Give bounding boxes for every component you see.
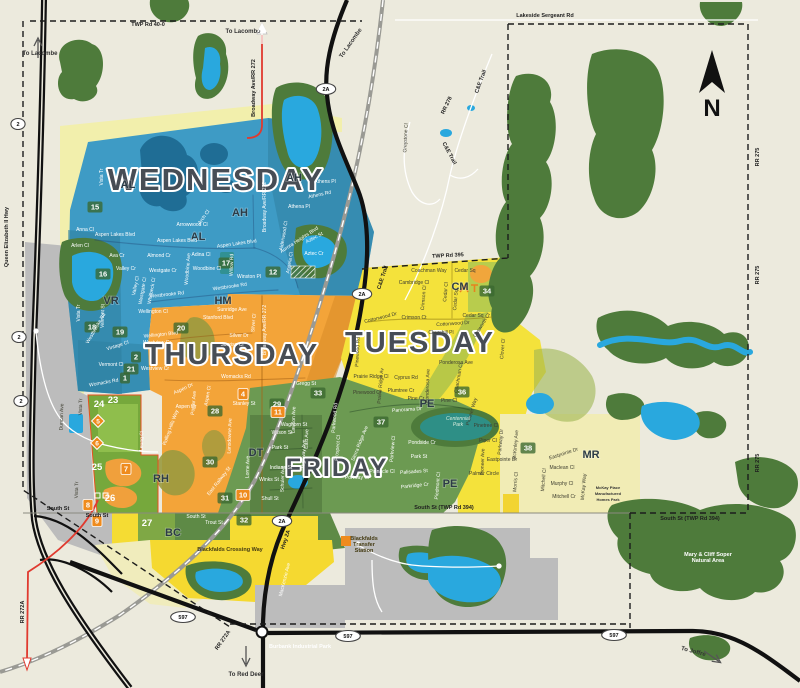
zone-code-bc: BC	[165, 527, 181, 539]
road-label: Ponderosa Ave	[424, 369, 431, 403]
road-label: Piper Cl	[479, 438, 497, 444]
area-number: 21	[127, 365, 135, 374]
area-number: 30	[206, 458, 214, 467]
road-label: Womacks Rd	[221, 374, 251, 380]
hatched-area	[291, 266, 315, 278]
road-label: Aspen Lakes Blvd	[95, 232, 135, 238]
road-label: Vista Tr	[78, 398, 85, 415]
road-label: Cedar Sq	[454, 268, 475, 274]
road-label: South St (TWP Rd 394)	[414, 505, 474, 511]
road-label: RR 272A	[20, 601, 26, 624]
road-label: Broadway Ave/RR 272	[262, 182, 268, 232]
area-number: 25	[92, 462, 103, 473]
highway-badge-label: 597	[343, 634, 352, 640]
road-label: Wellington Cl	[138, 309, 167, 315]
road-label: Willow Rd	[229, 254, 236, 277]
road-label: Pondside Cr	[408, 440, 436, 446]
road-label: Almond Cr	[147, 253, 171, 259]
road-label: Duncan Ave	[59, 403, 66, 430]
road-label: Gregg St	[296, 381, 317, 387]
road-label: Athena Pl	[288, 204, 310, 210]
road-label: RR 275	[755, 454, 761, 473]
road-label: Adina Cl	[192, 252, 211, 258]
area-number: 32	[240, 516, 248, 525]
road-label: To Red Deer	[229, 672, 265, 678]
highway-badge-label: 2A	[278, 519, 285, 525]
highway-badge-label: 597	[609, 633, 618, 639]
road-label: Pinetree Cl	[474, 423, 499, 429]
area-number: 1	[123, 374, 127, 383]
area-number: 38	[524, 444, 532, 453]
zone-code-rh: RH	[153, 473, 169, 485]
road-label: Sunridge Ave	[217, 307, 247, 313]
road-label: Park St	[272, 445, 289, 451]
day-label-tuesday: TUESDAY	[345, 327, 495, 359]
road-label: Churchill Pl	[428, 330, 453, 336]
area-number: 16	[99, 270, 107, 279]
road-label: Westgate Cr	[149, 268, 177, 274]
area-number: 24	[94, 399, 105, 410]
map-canvas: N WEDNESDAYTHURSDAYTUESDAYFRIDAYALALAHAH…	[0, 0, 800, 688]
road-label: Maclean Cl	[549, 465, 574, 471]
zone-code-ah: AH	[232, 207, 248, 219]
road-label: Silver Dr	[229, 333, 249, 339]
facility-number: 11	[274, 408, 282, 417]
road-label: South St	[86, 513, 109, 519]
road-label: Vista Tr	[99, 168, 105, 185]
area-number: 20	[177, 324, 185, 333]
area-number: 2	[134, 353, 138, 362]
road-label: Blackfalds Crossing Way	[197, 547, 263, 553]
area-number: 23	[108, 395, 119, 406]
gray-block-south	[255, 585, 345, 628]
road-label: Lorne Ave	[245, 455, 252, 478]
road-label: Cyprus Rd	[394, 375, 418, 381]
area-number: 27	[142, 518, 153, 529]
road-label: Broadway Ave/RR 272	[251, 59, 257, 117]
zone-code-hm: HM	[214, 295, 231, 307]
road-label: Portway Cl	[345, 475, 369, 481]
road-label: Anna Cl	[76, 227, 94, 233]
road-label: Leung Cl	[139, 431, 146, 451]
road-label: Shull St	[261, 496, 279, 502]
facility-number: 7	[124, 465, 128, 474]
road-label: Mitchell Cr	[552, 494, 576, 500]
highway-badge-label: 2A	[322, 87, 329, 93]
road-label: Vista Tr	[76, 304, 82, 321]
road-label: Cambridge Cl	[399, 280, 430, 286]
road-label: Trout St	[205, 520, 223, 526]
road-label: Aspen Lakes Blvd	[157, 238, 197, 244]
road-label: Winston Pl	[237, 274, 261, 280]
area-number: 33	[314, 389, 322, 398]
road-label: Winks St	[259, 477, 279, 483]
area-number: 19	[116, 328, 124, 337]
road-label: RR 275	[755, 148, 761, 167]
road-label: Ponderosa Ave	[439, 360, 473, 366]
road-label: Stanford Blvd	[203, 315, 233, 321]
road-label: Broadway Ave/RR 272	[262, 305, 268, 355]
highway-badge-label: 2	[17, 335, 20, 341]
zone-code-al: AL	[121, 179, 136, 191]
road-label: Westview Cr	[143, 340, 171, 346]
zone-code-pe: PE	[443, 478, 458, 490]
road-label: Plumtree Cr	[388, 388, 415, 394]
road-label: Highway Ave	[300, 439, 307, 468]
area-number: 31	[221, 494, 229, 503]
road-label: South St	[47, 506, 70, 512]
zone-code-ah: AH	[286, 172, 302, 184]
area-number: 26	[105, 493, 116, 504]
road-label: South St	[186, 514, 206, 520]
road-label: Pinewood Cl	[353, 390, 381, 396]
highway-badge-label: 2	[16, 122, 19, 128]
road-label: Murphy Cl	[551, 481, 574, 487]
road-label: Valley Cr	[116, 266, 136, 272]
area-number: 12	[269, 268, 277, 277]
block-yellow-9	[112, 513, 138, 545]
road-label: South St (TWP Rd 394)	[660, 516, 720, 522]
road-label: To Lacombe	[23, 51, 59, 57]
road-label: RR 275	[755, 266, 761, 285]
road-label: To Lacombe	[226, 29, 262, 35]
road-label: Coachman Way	[411, 268, 447, 274]
road-label: Athens Pl	[314, 179, 335, 185]
road-label: Pine Cr	[408, 396, 425, 402]
road-label: TWP Rd 40-0	[131, 22, 165, 28]
road-label: Park St	[411, 454, 428, 460]
north-label: N	[703, 95, 720, 122]
road-label: Vista Tr	[74, 481, 81, 498]
road-label: Cedar Sq	[462, 313, 483, 319]
highway-badge-label: 2A	[358, 292, 365, 298]
road-label: Pine Cl	[441, 398, 457, 404]
road-label: Burbank Industrial Park	[269, 644, 332, 650]
road-label: Valmont St	[100, 303, 107, 328]
facility-number: 5	[96, 418, 100, 425]
area-number: 37	[377, 418, 385, 427]
road-label: Westview Cr	[141, 366, 169, 372]
road-label: Arlen Cl	[71, 243, 89, 249]
area-number: 28	[211, 407, 219, 416]
road-label: Pinnacle Cl	[369, 469, 394, 475]
road-label: Palmer Circle	[469, 471, 499, 477]
road-label: Schuler Ave	[280, 465, 287, 492]
road-label: Aztec Cr	[304, 251, 324, 257]
road-label: Crimson Ct	[401, 315, 427, 321]
road-label: Woodbine Cl	[193, 266, 222, 272]
zone-code-mr: MR	[582, 449, 599, 461]
road-label: Lawson Ave	[291, 406, 298, 433]
road-label: Vermont Cl	[99, 362, 124, 368]
mckay-place-label: McKay PlaceManufacturedHomes Park	[595, 485, 622, 502]
area-number: 34	[483, 287, 492, 296]
mr-yellow-block	[503, 494, 519, 513]
highway-badge-label: 2	[19, 399, 22, 405]
road-label: Stanley St	[233, 401, 256, 407]
road-label: Lakeside Sergeant Rd	[516, 13, 573, 19]
road-label: Sunrise Cl	[220, 342, 243, 348]
road-label: Queen Elizabeth II Hwy	[4, 206, 10, 267]
roundabout	[257, 627, 268, 638]
area-number: 15	[91, 203, 99, 212]
road-label: Ava Cr	[109, 253, 125, 259]
facility-number: 10	[239, 491, 247, 500]
collection-day-map: N WEDNESDAYTHURSDAYTUESDAYFRIDAYALALAHAH…	[0, 0, 800, 688]
facility-number: 8	[86, 501, 90, 510]
facility-number: 6	[95, 440, 99, 447]
highway-badge-label: 597	[178, 615, 187, 621]
road-label: Lansdowne Ave	[226, 418, 233, 454]
